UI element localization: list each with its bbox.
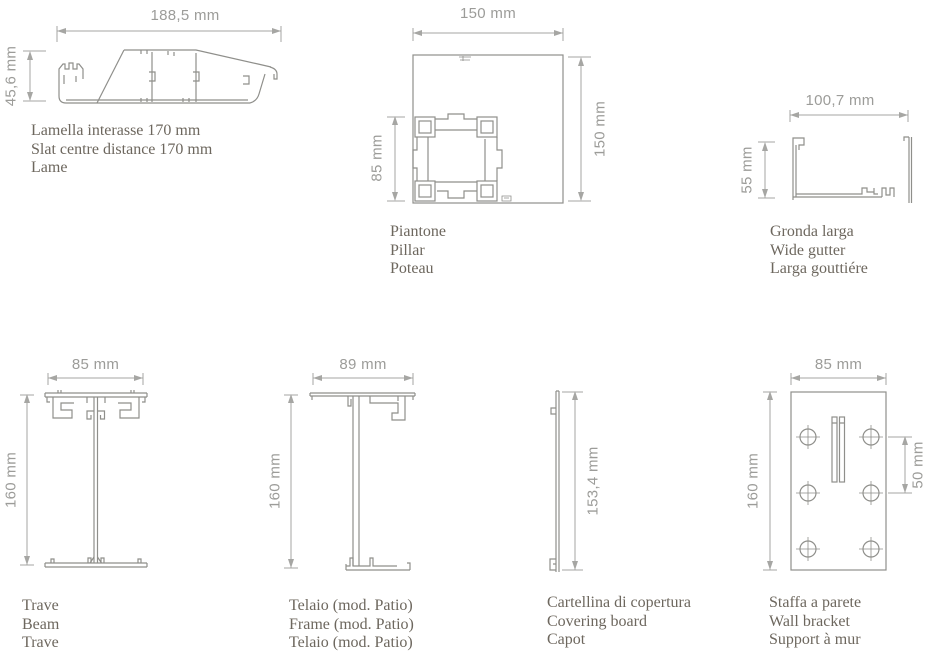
profiles-diagram-page: 188,5 mm 45,6 mm Lamella interasse 170 m… xyxy=(0,0,930,658)
slat-profile-outline xyxy=(59,50,277,103)
beam-profile-outline xyxy=(45,390,147,567)
bracket-height-dimension xyxy=(763,391,777,570)
covering-board-height-label: 153,4 mm xyxy=(585,446,602,515)
pillar-inner-dimension xyxy=(387,116,405,201)
slat-caption-it: Lamella interasse 170 mm xyxy=(31,122,212,141)
beam-caption-en: Beam xyxy=(22,616,59,635)
frame-caption-it: Telaio (mod. Patio) xyxy=(289,597,414,616)
pillar-width-dimension xyxy=(413,28,563,41)
beam-caption-fr: Trave xyxy=(22,634,59,653)
frame-profile-outline xyxy=(310,393,415,570)
gutter-caption-fr: Larga gouttiére xyxy=(770,260,868,279)
gutter-profile-outline xyxy=(793,137,912,203)
pillar-caption-fr: Poteau xyxy=(390,260,446,279)
beam-width-dimension xyxy=(48,373,143,385)
bracket-caption-fr: Support à mur xyxy=(769,631,861,650)
pillar-width-label: 150 mm xyxy=(413,5,563,22)
covering-board-profile-outline xyxy=(550,391,559,572)
figure-gutter: 100,7 mm 55 mm Gronda larga Wide gutter … xyxy=(720,80,930,290)
bracket-caption: Staffa a parete Wall bracket Support à m… xyxy=(769,594,861,650)
covering-board-caption-en: Covering board xyxy=(547,613,691,632)
bracket-hole-spacing-dimension xyxy=(888,436,912,493)
beam-height-label: 160 mm xyxy=(3,452,20,508)
figure-pillar: 150 mm 150 mm 85 mm Piantone Pillar Pote… xyxy=(360,0,610,290)
frame-width-dimension xyxy=(313,373,413,385)
covering-board-height-dimension xyxy=(562,391,583,570)
pillar-profile-outline xyxy=(413,55,563,203)
bracket-width-label: 85 mm xyxy=(791,356,886,373)
pillar-caption-it: Piantone xyxy=(390,223,446,242)
frame-caption-fr: Telaio (mod. Patio) xyxy=(289,634,414,653)
covering-board-caption: Cartellina di copertura Covering board C… xyxy=(547,594,691,650)
gutter-caption-en: Wide gutter xyxy=(770,242,868,261)
pillar-height-dimension xyxy=(568,57,591,201)
bracket-caption-en: Wall bracket xyxy=(769,613,861,632)
slat-height-dimension xyxy=(23,51,46,101)
pillar-caption: Piantone Pillar Poteau xyxy=(390,223,446,279)
gutter-height-dimension xyxy=(758,142,775,198)
figure-covering-board: 153,4 mm Cartellina di copertura Coverin… xyxy=(520,350,720,658)
gutter-width-dimension xyxy=(790,110,908,122)
slat-width-dimension xyxy=(57,26,281,42)
frame-height-label: 160 mm xyxy=(267,453,284,509)
bracket-plate-outline xyxy=(791,392,886,570)
pillar-height-label: 150 mm xyxy=(592,101,609,157)
beam-width-label: 85 mm xyxy=(48,356,143,373)
covering-board-caption-fr: Capot xyxy=(547,631,691,650)
pillar-caption-en: Pillar xyxy=(390,242,446,261)
slat-caption-en: Slat centre distance 170 mm xyxy=(31,141,212,160)
bracket-width-dimension xyxy=(791,373,886,385)
pillar-inner-label: 85 mm xyxy=(369,134,386,181)
frame-width-label: 89 mm xyxy=(313,356,413,373)
beam-height-dimension xyxy=(20,394,34,565)
beam-caption-it: Trave xyxy=(22,597,59,616)
bracket-caption-it: Staffa a parete xyxy=(769,594,861,613)
figure-bracket: 85 mm 160 mm 50 mm Staffa a parete Wall … xyxy=(720,350,930,658)
figure-slat: 188,5 mm 45,6 mm Lamella interasse 170 m… xyxy=(0,0,300,180)
slat-caption-fr: Lame xyxy=(31,159,212,178)
frame-caption-en: Frame (mod. Patio) xyxy=(289,616,414,635)
gutter-height-label: 55 mm xyxy=(739,146,756,193)
gutter-caption-it: Gronda larga xyxy=(770,223,868,242)
slat-caption: Lamella interasse 170 mm Slat centre dis… xyxy=(31,122,212,178)
beam-caption: Trave Beam Trave xyxy=(22,597,59,653)
slat-height-label: 45,6 mm xyxy=(3,46,20,106)
figure-frame: 89 mm 160 mm Telaio (mod. Patio) Frame (… xyxy=(260,350,490,658)
bracket-hole-spacing-label: 50 mm xyxy=(910,441,927,488)
frame-caption: Telaio (mod. Patio) Frame (mod. Patio) T… xyxy=(289,597,414,653)
covering-board-caption-it: Cartellina di copertura xyxy=(547,594,691,613)
gutter-caption: Gronda larga Wide gutter Larga gouttiére xyxy=(770,223,868,279)
frame-height-dimension xyxy=(284,394,298,568)
gutter-width-label: 100,7 mm xyxy=(785,92,895,109)
slat-width-label: 188,5 mm xyxy=(130,7,240,24)
bracket-height-label: 160 mm xyxy=(745,453,762,509)
figure-beam: 85 mm 160 mm Trave Beam Trave xyxy=(0,350,230,658)
